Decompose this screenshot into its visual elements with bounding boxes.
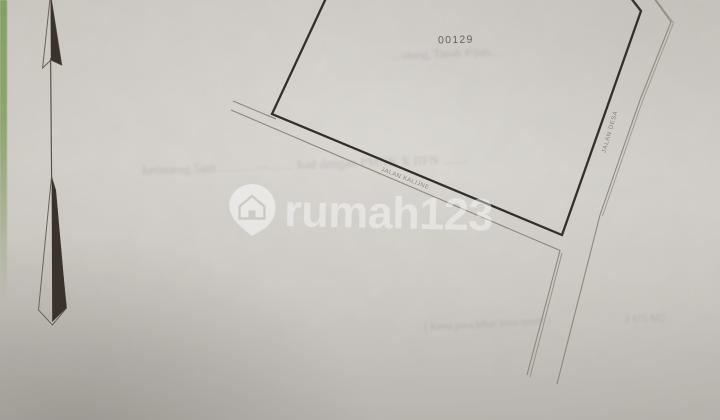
svg-text:3 175 M2: 3 175 M2 <box>624 313 665 326</box>
svg-text:00129: 00129 <box>438 34 474 47</box>
svg-text:rumah123: rumah123 <box>284 185 494 240</box>
